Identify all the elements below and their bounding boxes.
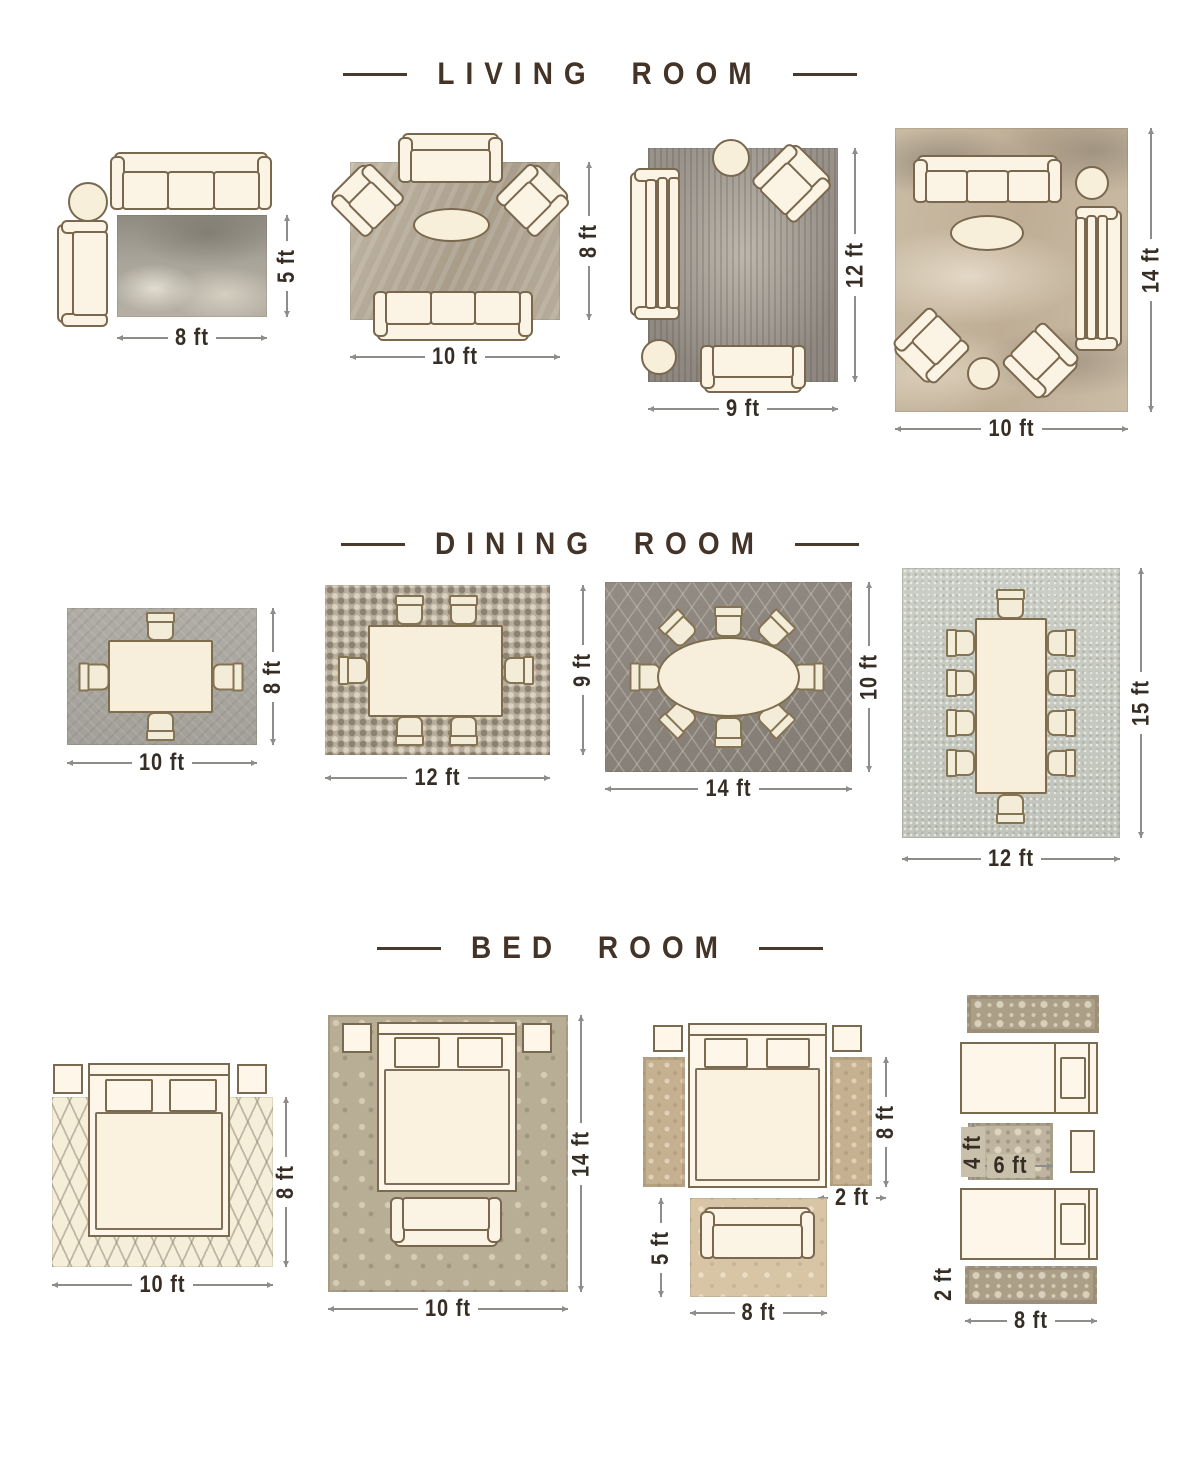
dimension-label: 4 ft [961, 1127, 985, 1177]
dimension-label: 6 ft [987, 1154, 1035, 1178]
twin-bed [960, 1188, 1098, 1260]
dimension-label: 14 ft [698, 777, 758, 801]
queen-bed [377, 1022, 517, 1192]
dimension-label: 14 ft [1139, 239, 1163, 301]
title-dash [377, 947, 441, 950]
dimension-label: 10 ft [418, 1297, 478, 1321]
nightstand [653, 1025, 683, 1052]
dimension-label: 8 ft [261, 652, 285, 702]
height-dimension: 8 ft [275, 1097, 297, 1267]
dimension-label: 8 ft [168, 326, 216, 350]
bedside-runner-8x2 [643, 1057, 685, 1187]
nightstand [237, 1064, 267, 1094]
nightstand [53, 1064, 83, 1094]
dimension-label: 5 ft [275, 241, 299, 291]
runner-width-dimension: 2 ft [933, 1264, 955, 1304]
runner-8x2 [965, 1266, 1097, 1304]
bedside-runner-8x2 [830, 1057, 872, 1187]
queen-bed [88, 1063, 230, 1237]
dimension-label: 10 ft [857, 646, 881, 708]
dimension-label: 15 ft [1129, 672, 1153, 734]
dimension-label: 10 ft [425, 345, 485, 369]
dimension-label: 5 ft [649, 1223, 673, 1273]
dimension-label: 8 ft [274, 1157, 298, 1207]
settee [700, 1207, 815, 1259]
dimension-label: 2 ft [828, 1186, 876, 1210]
nightstand [342, 1023, 372, 1053]
dimension-label: 12 ft [843, 234, 867, 296]
dimension-label: 10 ft [981, 417, 1041, 441]
bench [390, 1197, 502, 1247]
height-dimension: 14 ft [570, 1015, 592, 1292]
nightstand [1070, 1130, 1095, 1173]
dimension-label: 8 ft [735, 1301, 783, 1325]
runner-height-dimension: 8 ft [875, 1057, 897, 1187]
runner-width-dimension: 2 ft [818, 1187, 886, 1209]
nightstand [832, 1025, 862, 1052]
queen-bed [688, 1023, 827, 1188]
runner-length-dimension: 8 ft [965, 1310, 1097, 1332]
dimension-label: 2 ft [932, 1259, 956, 1309]
rug-size-guide: LIVING ROOM 5 ft 8 ft 8 ft 10 ft [0, 0, 1200, 1467]
width-dimension: 10 ft [52, 1274, 273, 1296]
section-title-bed-room: BED ROOM [471, 930, 729, 966]
bed-room-title-row: BED ROOM [0, 932, 1200, 964]
width-dimension: 10 ft [328, 1298, 568, 1320]
rug-height-dimension: 5 ft [650, 1198, 672, 1297]
nightstand [522, 1023, 552, 1053]
rug-width-dimension: 8 ft [690, 1302, 827, 1324]
dimension-label: 8 ft [1007, 1309, 1055, 1333]
dimension-label: 14 ft [569, 1122, 593, 1184]
dimension-label: 12 ft [981, 847, 1041, 871]
dimension-label: 10 ft [132, 1273, 192, 1297]
dimension-label: 8 ft [874, 1097, 898, 1147]
runner-8x2 [967, 995, 1099, 1033]
mid-rug-height-dimension: 4 ft [962, 1123, 984, 1180]
dimension-label: 9 ft [571, 645, 595, 695]
title-dash [759, 947, 823, 950]
dimension-label: 10 ft [132, 751, 192, 775]
twin-bed [960, 1042, 1098, 1114]
dimension-label: 8 ft [577, 216, 601, 266]
dimension-label: 12 ft [407, 766, 467, 790]
dimension-label: 9 ft [719, 397, 767, 421]
